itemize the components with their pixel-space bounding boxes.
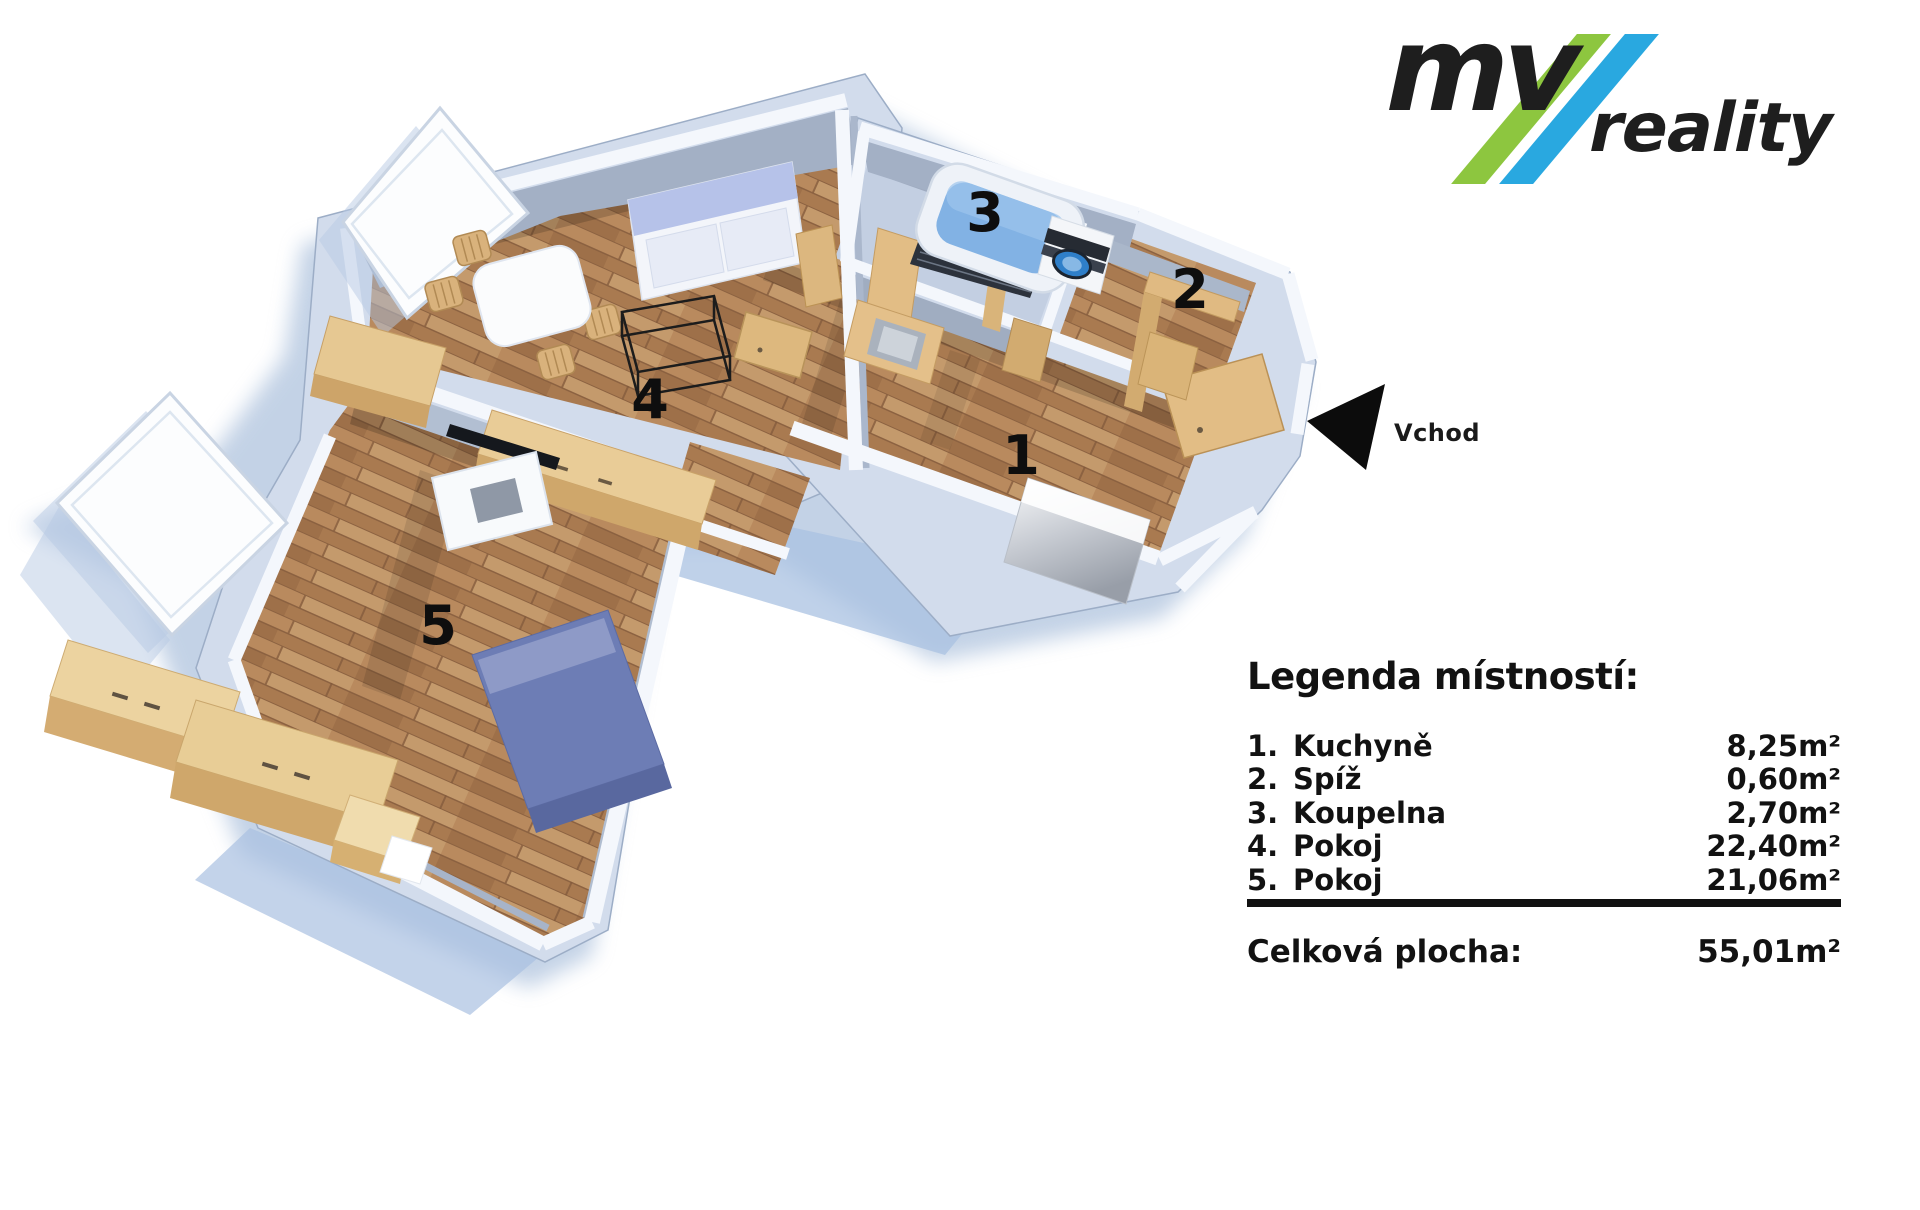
legend-row-area: 8,25m² (1727, 729, 1841, 763)
legend-row-name: Koupelna (1293, 796, 1727, 830)
legend-room-list: 1. Kuchyně 8,25m² 2. Spíž 0,60m² 3. Koup… (1247, 729, 1841, 897)
legend-total-row: Celková plocha: 55,01m² (1247, 934, 1841, 970)
legend-row-name: Kuchyně (1293, 729, 1727, 763)
legend-row-number: 4. (1247, 829, 1293, 863)
legend-row: 3. Koupelna 2,70m² (1247, 796, 1841, 830)
entrance-label: Vchod (1394, 419, 1480, 447)
legend-row-number: 3. (1247, 796, 1293, 830)
legend-row: 5. Pokoj 21,06m² (1247, 863, 1841, 897)
legend-row-area: 2,70m² (1727, 796, 1841, 830)
room-label-2: 2 (1171, 263, 1209, 317)
room-label-4: 4 (631, 373, 669, 427)
legend-row-area: 21,06m² (1706, 863, 1841, 897)
legend-row-name: Pokoj (1293, 829, 1706, 863)
legend-row-number: 1. (1247, 729, 1293, 763)
legend-row: 2. Spíž 0,60m² (1247, 763, 1841, 797)
legend-row-area: 22,40m² (1706, 829, 1841, 863)
legend-total-label: Celková plocha: (1247, 934, 1697, 970)
legend-row-number: 5. (1247, 863, 1293, 897)
room-label-5: 5 (419, 599, 457, 653)
room-label-3: 3 (966, 186, 1004, 240)
legend-divider (1247, 899, 1841, 907)
floor-plan-page: 1 2 3 4 5 Vchod mv reality Legenda místn… (0, 0, 1920, 1210)
logo-text-mv: mv (1375, 10, 1586, 128)
legend-total-value: 55,01m² (1697, 934, 1841, 970)
legend-row-name: Pokoj (1293, 863, 1706, 897)
legend-row-area: 0,60m² (1727, 762, 1841, 796)
room-label-1: 1 (1002, 429, 1040, 483)
legend-row-number: 2. (1247, 762, 1293, 796)
legend-title: Legenda místností: (1247, 655, 1639, 698)
logo-text-reality: reality (1583, 95, 1839, 163)
legend-row-name: Spíž (1293, 762, 1727, 796)
entrance-arrow-icon (1307, 384, 1385, 470)
legend-row: 4. Pokoj 22,40m² (1247, 830, 1841, 864)
legend-row: 1. Kuchyně 8,25m² (1247, 729, 1841, 763)
brand-logo: mv reality (1392, 26, 1912, 196)
